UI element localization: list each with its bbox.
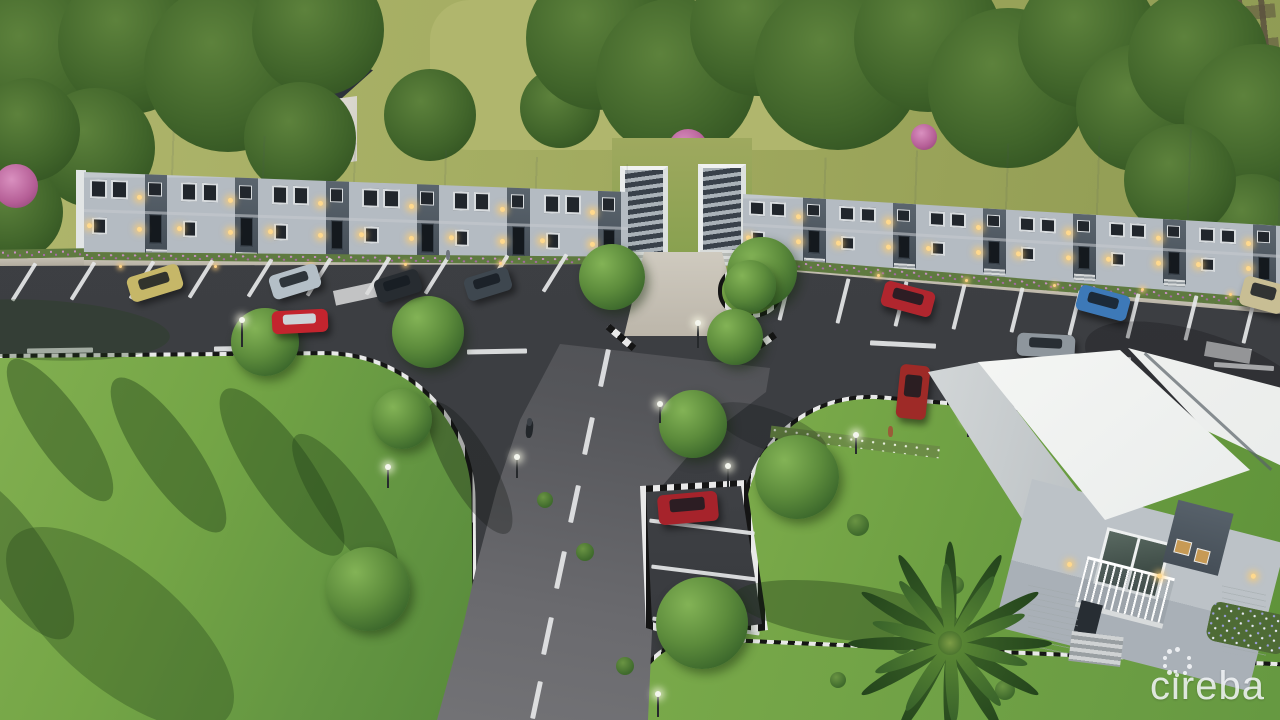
street-lamp bbox=[385, 464, 391, 484]
bollard-light bbox=[404, 263, 407, 266]
logo-petal bbox=[1163, 656, 1167, 660]
street-lamp bbox=[695, 320, 701, 344]
rendering-canvas: cireba bbox=[0, 0, 1280, 720]
street-lamp bbox=[657, 401, 663, 419]
lamp-post bbox=[697, 324, 699, 348]
bollard-light bbox=[1053, 284, 1056, 287]
street-lamp bbox=[514, 454, 520, 474]
car-red-hatchback bbox=[657, 490, 719, 525]
tree bbox=[579, 244, 645, 310]
lamp-bulb bbox=[239, 317, 245, 323]
lamp-post bbox=[387, 468, 389, 488]
lamp-bulb bbox=[655, 691, 661, 697]
tree bbox=[326, 547, 410, 631]
wall-light bbox=[1067, 561, 1073, 567]
tree bbox=[392, 296, 464, 368]
shrub bbox=[537, 492, 553, 508]
bollard-light bbox=[214, 265, 217, 268]
lamp-post bbox=[657, 695, 659, 717]
shrub bbox=[847, 514, 869, 536]
car-glass bbox=[283, 313, 316, 324]
bollard-light bbox=[877, 274, 880, 277]
car-silver-sedan bbox=[267, 262, 322, 301]
car-yellow-sedan bbox=[125, 263, 184, 304]
car-glass bbox=[1249, 282, 1277, 301]
tree bbox=[707, 309, 763, 365]
watermark-text: cireba bbox=[1150, 666, 1280, 706]
palm-crown bbox=[938, 631, 962, 655]
car-red-sports bbox=[271, 308, 328, 334]
tree bbox=[724, 260, 776, 312]
bollard-light bbox=[1229, 293, 1232, 296]
lamp-bulb bbox=[657, 401, 663, 407]
wall-light bbox=[1250, 573, 1256, 579]
car-glass bbox=[383, 275, 411, 292]
bollard-light bbox=[119, 265, 122, 268]
pedestrian-steps bbox=[446, 250, 450, 260]
bollard-light bbox=[1141, 288, 1144, 291]
shrub bbox=[576, 543, 594, 561]
cyclist-rider bbox=[526, 418, 532, 426]
logo-petal bbox=[1175, 647, 1180, 652]
lamp-bulb bbox=[725, 463, 731, 469]
bollard-light bbox=[499, 262, 502, 265]
lamp-bulb bbox=[853, 432, 859, 438]
logo-petal bbox=[1187, 656, 1191, 660]
tree bbox=[372, 389, 432, 449]
lamp-post bbox=[241, 321, 243, 347]
lamp-post bbox=[727, 467, 729, 487]
street-lamp bbox=[655, 691, 661, 713]
lamp-bulb bbox=[514, 454, 520, 460]
tree bbox=[659, 390, 727, 458]
bollard-light bbox=[965, 279, 968, 282]
accent-panel bbox=[1163, 500, 1234, 576]
car-gray-sedan bbox=[462, 266, 513, 302]
car-glass bbox=[892, 287, 924, 305]
shrub bbox=[830, 672, 846, 688]
logo-petal bbox=[1167, 649, 1172, 654]
car-glass bbox=[669, 497, 705, 513]
car-blue-sedan bbox=[1075, 284, 1132, 323]
car-glass bbox=[473, 273, 501, 290]
car-glass bbox=[278, 269, 309, 288]
lamp-bulb bbox=[695, 320, 701, 326]
shrub bbox=[616, 657, 634, 675]
lamp-post bbox=[659, 405, 661, 423]
lamp-post bbox=[516, 458, 518, 478]
street-lamp bbox=[725, 463, 731, 483]
street-lamp bbox=[853, 432, 859, 450]
car-glass bbox=[137, 271, 170, 291]
watermark: cireba bbox=[1110, 620, 1280, 720]
lamp-bulb bbox=[385, 464, 391, 470]
car-red-sedan bbox=[880, 280, 937, 319]
lit-window bbox=[1194, 548, 1211, 565]
car-beige-van bbox=[1238, 275, 1280, 315]
lit-window bbox=[1173, 539, 1192, 557]
tree bbox=[755, 435, 839, 519]
pedestrian-lawn bbox=[888, 426, 893, 437]
car-glass bbox=[1087, 291, 1119, 309]
street-lamp bbox=[239, 317, 245, 343]
tree bbox=[656, 577, 748, 669]
lamp-post bbox=[855, 436, 857, 454]
